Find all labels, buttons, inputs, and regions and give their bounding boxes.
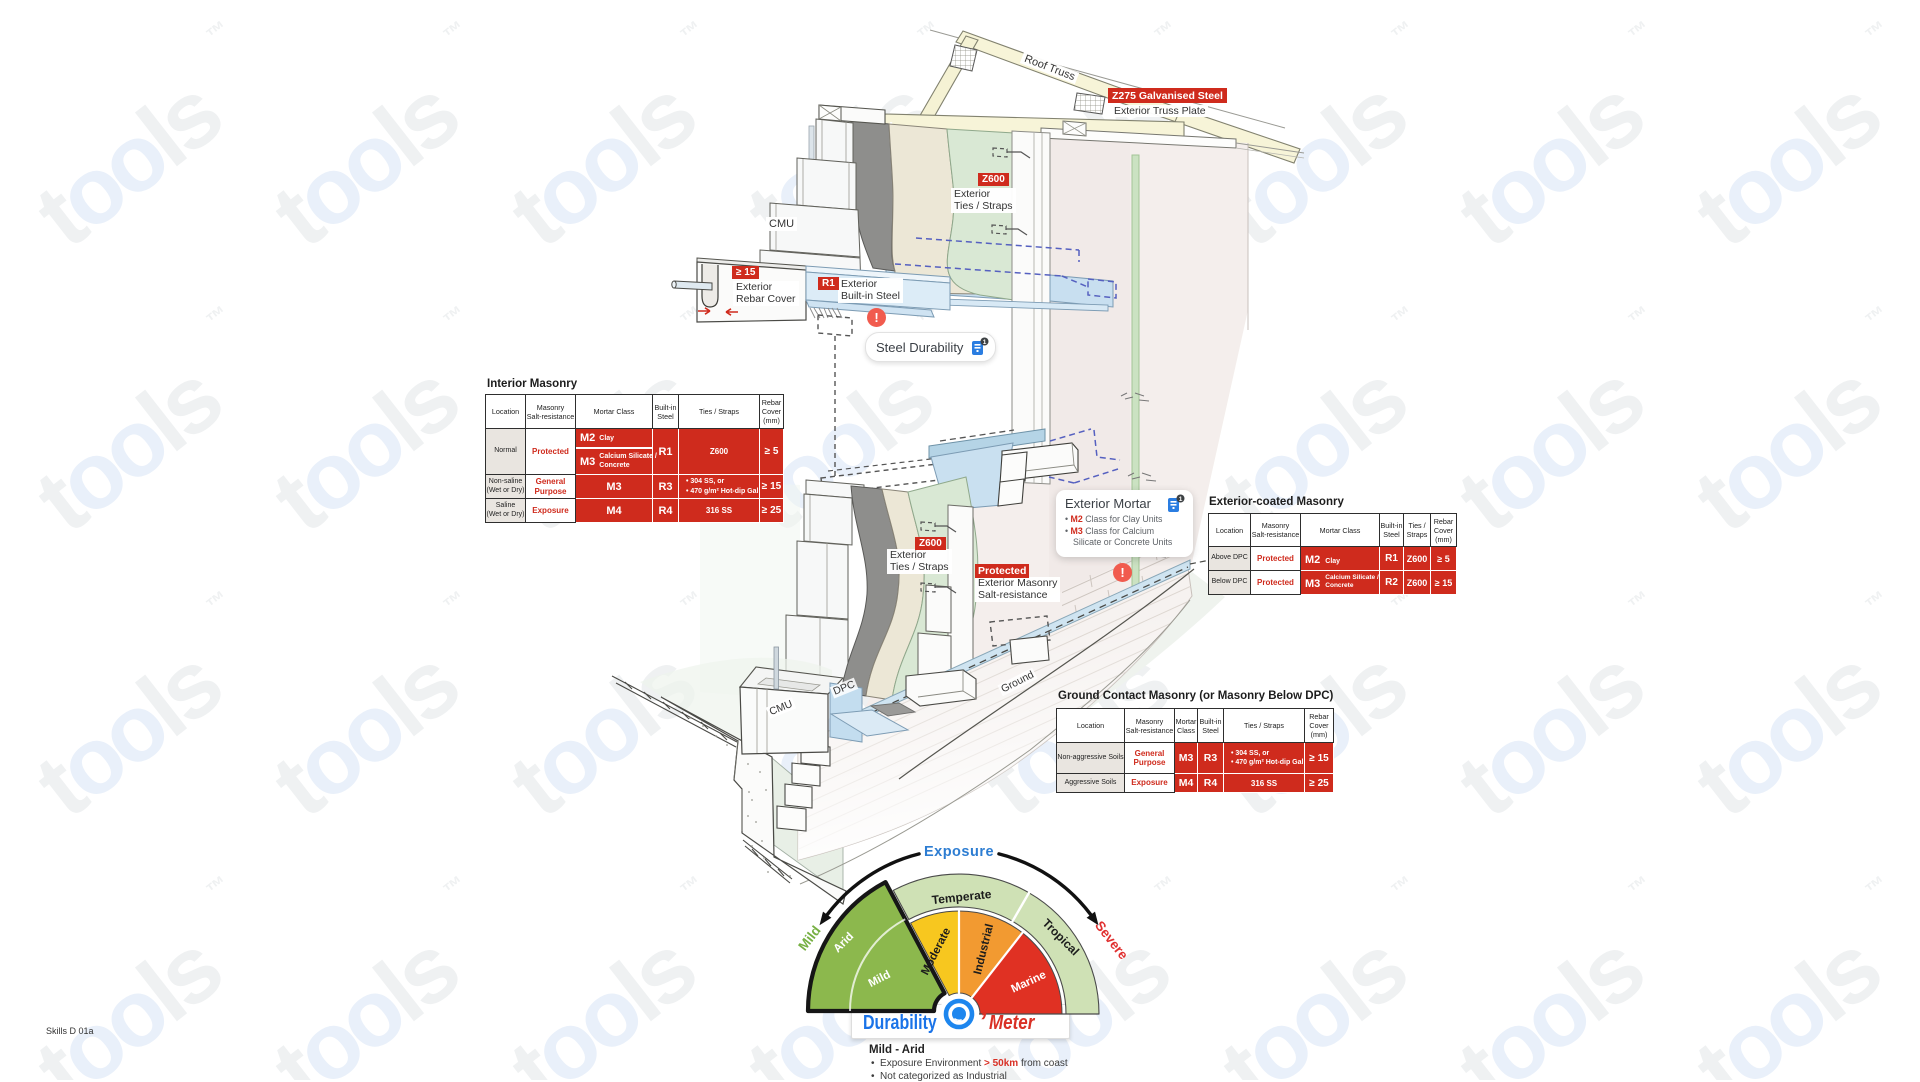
svg-text:1: 1 [1179, 496, 1183, 503]
svg-text:Exposure: Exposure [924, 844, 994, 860]
svg-text:Severe: Severe [1092, 918, 1131, 963]
svg-text:Mild: Mild [795, 923, 823, 954]
svg-text:1: 1 [983, 339, 987, 346]
